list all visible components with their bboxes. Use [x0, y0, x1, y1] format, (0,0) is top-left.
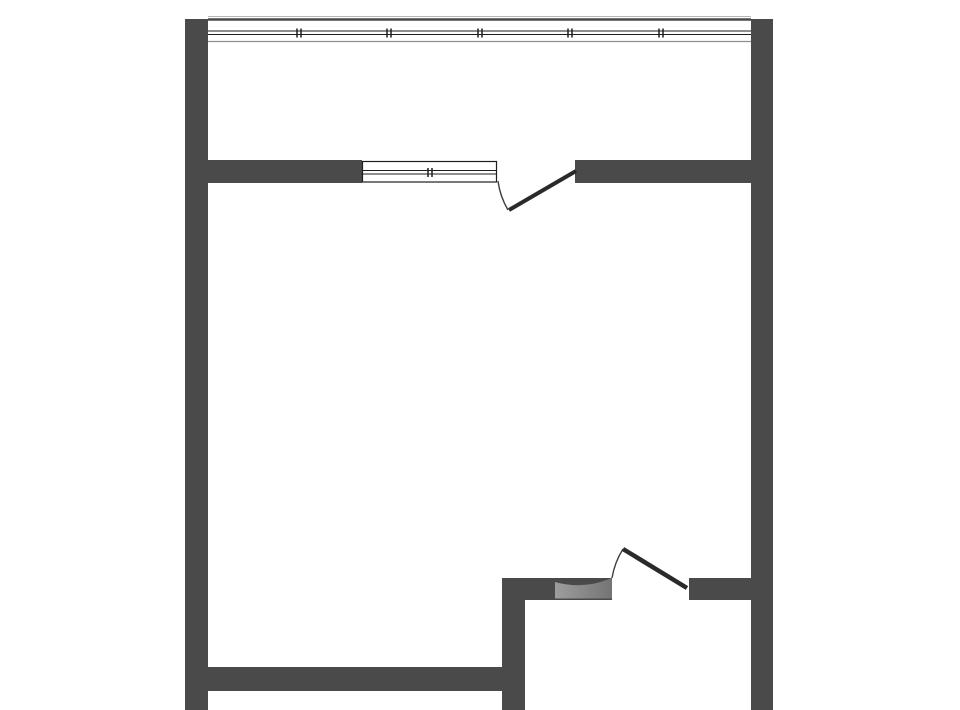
entry-door-swing-arc	[612, 549, 623, 578]
room-window-frame	[363, 162, 497, 183]
entry-door-leaf	[623, 549, 687, 588]
balcony-door-leaf	[509, 171, 576, 210]
entry-door-swing-shade	[555, 578, 612, 599]
floor-plan	[0, 0, 960, 710]
plan-drawing-layer	[0, 0, 960, 710]
balcony-door-swing-arc	[498, 181, 508, 210]
